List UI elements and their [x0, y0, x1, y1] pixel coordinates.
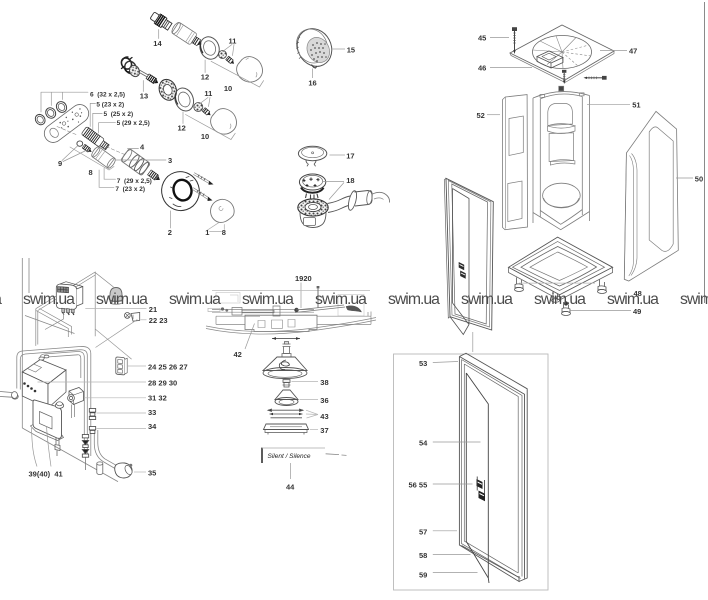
svg-text:28 29 30: 28 29 30: [148, 379, 177, 388]
svg-text:swim.ua: swim.ua: [315, 291, 367, 308]
svg-text:7 (29 x 2,5): 7 (29 x 2,5): [117, 178, 152, 185]
svg-text:7 (23 x 2): 7 (23 x 2): [115, 186, 145, 193]
svg-text:49: 49: [633, 307, 641, 316]
svg-text:10: 10: [201, 132, 209, 141]
svg-text:53: 53: [419, 359, 427, 368]
svg-text:34: 34: [148, 422, 157, 431]
svg-text:15: 15: [347, 46, 355, 55]
svg-text:45: 45: [478, 34, 486, 43]
svg-text:33: 33: [148, 408, 156, 417]
svg-text:12: 12: [201, 72, 209, 81]
svg-text:1920: 1920: [295, 274, 312, 283]
svg-text:39(40) 41: 39(40) 41: [29, 470, 63, 479]
svg-text:12: 12: [178, 123, 186, 132]
svg-text:11: 11: [204, 89, 212, 98]
svg-text:52: 52: [477, 111, 485, 120]
svg-text:37: 37: [320, 426, 328, 435]
svg-text:9: 9: [58, 159, 62, 168]
svg-text:46: 46: [478, 64, 486, 73]
svg-text:5 (29 x 2,5): 5 (29 x 2,5): [117, 120, 150, 127]
svg-text:44: 44: [286, 483, 295, 492]
svg-text:3: 3: [168, 156, 172, 165]
svg-text:10: 10: [224, 84, 232, 93]
svg-text:17: 17: [346, 151, 354, 160]
svg-text:58: 58: [419, 551, 427, 560]
svg-text:swim.ua: swim.ua: [23, 291, 75, 308]
svg-text:swim.ua: swim.ua: [607, 291, 659, 308]
svg-text:5 (23 x 2): 5 (23 x 2): [96, 101, 124, 108]
svg-text:13: 13: [140, 91, 148, 100]
svg-text:59: 59: [419, 571, 427, 580]
svg-text:57: 57: [419, 527, 427, 536]
svg-text:22 23: 22 23: [149, 316, 168, 325]
svg-text:31 32: 31 32: [148, 393, 167, 402]
svg-text:51: 51: [632, 101, 640, 110]
svg-text:14: 14: [153, 39, 162, 48]
svg-text:35: 35: [148, 469, 156, 478]
svg-text:swim.ua: swim.ua: [680, 291, 708, 308]
svg-text:36: 36: [320, 396, 328, 405]
svg-text:swim.ua: swim.ua: [96, 291, 148, 308]
svg-text:Silent / Silence: Silent / Silence: [268, 453, 311, 460]
svg-text:16: 16: [308, 78, 316, 87]
svg-text:18: 18: [346, 176, 354, 185]
svg-text:47: 47: [629, 47, 637, 56]
svg-text:50: 50: [695, 174, 703, 183]
svg-text:11: 11: [229, 36, 237, 45]
svg-text:42: 42: [234, 350, 242, 359]
svg-text:24 25 26 27: 24 25 26 27: [148, 363, 188, 372]
svg-text:6 (32 x 2,5): 6 (32 x 2,5): [90, 92, 125, 99]
svg-text:2: 2: [168, 228, 172, 237]
svg-text:56 55: 56 55: [409, 481, 428, 490]
svg-text:54: 54: [419, 439, 428, 448]
svg-text:swim.ua: swim.ua: [534, 291, 586, 308]
svg-text:swim.ua: swim.ua: [169, 291, 221, 308]
svg-text:43: 43: [320, 412, 328, 421]
svg-text:swim.ua: swim.ua: [388, 291, 440, 308]
svg-text:8: 8: [89, 168, 93, 177]
svg-text:5 (25 x 2): 5 (25 x 2): [104, 111, 134, 118]
svg-text:swim.ua: swim.ua: [242, 291, 294, 308]
svg-text:21: 21: [149, 305, 157, 314]
svg-text:8: 8: [222, 228, 226, 237]
svg-text:swim.ua: swim.ua: [461, 291, 513, 308]
svg-text:38: 38: [320, 378, 328, 387]
svg-text:1: 1: [205, 228, 209, 237]
